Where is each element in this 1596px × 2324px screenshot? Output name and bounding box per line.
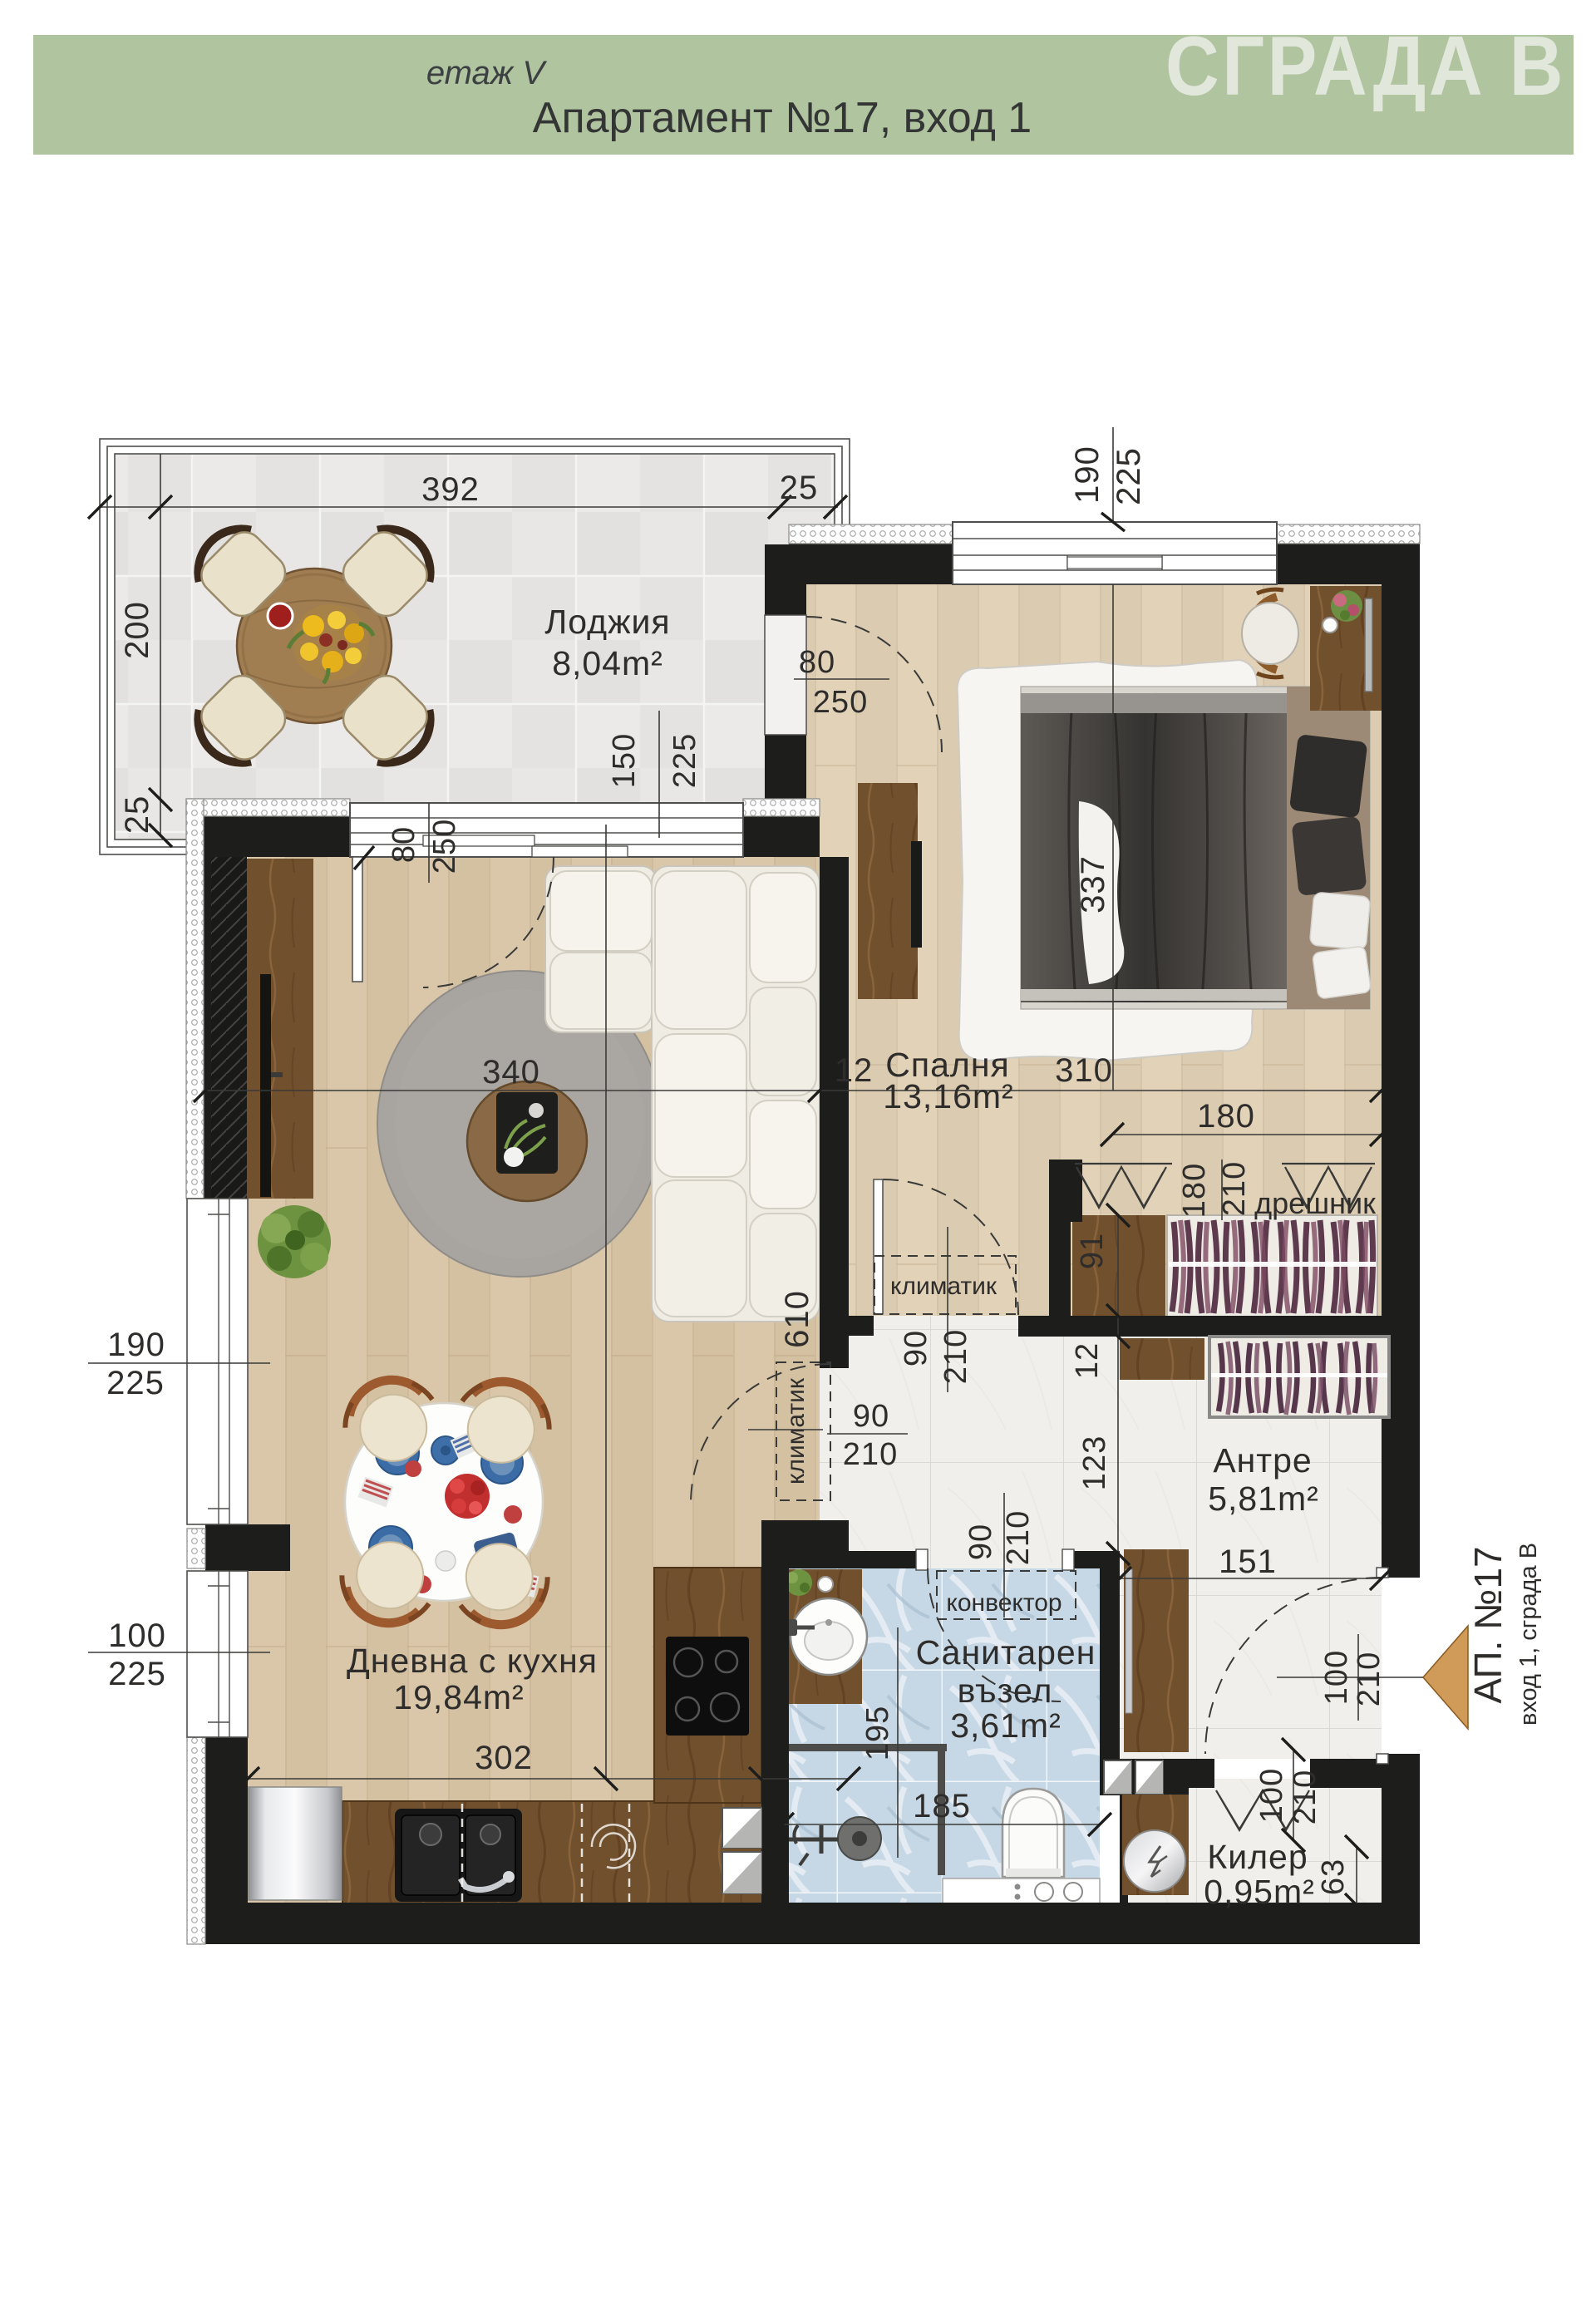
svg-text:180: 180 — [1177, 1163, 1212, 1218]
svg-text:250: 250 — [813, 685, 868, 720]
svg-text:8,04m²: 8,04m² — [552, 644, 663, 682]
svg-text:225: 225 — [1111, 447, 1147, 505]
svg-text:150: 150 — [607, 733, 642, 788]
svg-text:климатик: климатик — [890, 1273, 997, 1300]
svg-text:340: 340 — [482, 1054, 540, 1091]
svg-text:Дневна с кухня: Дневна с кухня — [347, 1642, 598, 1680]
svg-text:210: 210 — [1288, 1770, 1323, 1824]
svg-text:302: 302 — [475, 1740, 533, 1776]
svg-text:610: 610 — [779, 1290, 815, 1348]
svg-text:185: 185 — [913, 1788, 971, 1824]
svg-text:Лоджия: Лоджия — [544, 603, 670, 641]
svg-text:100: 100 — [1319, 1650, 1354, 1705]
svg-text:80: 80 — [387, 826, 421, 863]
svg-text:80: 80 — [799, 645, 835, 680]
svg-text:392: 392 — [421, 471, 480, 508]
svg-text:5,81m²: 5,81m² — [1208, 1480, 1319, 1518]
svg-text:3,61m²: 3,61m² — [950, 1706, 1062, 1745]
svg-text:СГРАДА В: СГРАДА В — [1165, 20, 1566, 113]
svg-text:210: 210 — [1352, 1652, 1387, 1706]
svg-text:Антре: Антре — [1213, 1441, 1312, 1480]
svg-text:13,16m²: 13,16m² — [883, 1077, 1013, 1115]
svg-text:190: 190 — [107, 1327, 165, 1363]
svg-text:25: 25 — [119, 795, 155, 835]
svg-text:190: 190 — [1069, 446, 1106, 504]
svg-text:151: 151 — [1219, 1544, 1277, 1580]
svg-text:100: 100 — [108, 1617, 166, 1654]
svg-text:90: 90 — [899, 1330, 933, 1366]
svg-text:123: 123 — [1077, 1435, 1112, 1490]
svg-text:възел: възел — [958, 1672, 1053, 1710]
svg-text:Килер: Килер — [1207, 1838, 1308, 1876]
svg-text:12: 12 — [835, 1052, 874, 1089]
svg-text:вход 1, сграда В: вход 1, сграда В — [1515, 1543, 1542, 1726]
svg-text:180: 180 — [1197, 1098, 1255, 1135]
svg-text:0,95m²: 0,95m² — [1204, 1873, 1315, 1911]
svg-text:91: 91 — [1075, 1233, 1110, 1269]
svg-text:310: 310 — [1055, 1052, 1113, 1089]
svg-text:12: 12 — [1070, 1342, 1105, 1379]
svg-text:195: 195 — [860, 1706, 895, 1760]
svg-text:етаж V: етаж V — [426, 55, 548, 91]
svg-text:климатик: климатик — [782, 1377, 810, 1485]
svg-text:63: 63 — [1316, 1859, 1351, 1895]
svg-text:210: 210 — [1217, 1161, 1252, 1216]
svg-text:210: 210 — [938, 1329, 973, 1384]
svg-text:200: 200 — [119, 601, 155, 659]
svg-text:АП. №17: АП. №17 — [1466, 1546, 1510, 1703]
svg-text:210: 210 — [1001, 1510, 1036, 1565]
svg-text:225: 225 — [667, 733, 702, 788]
svg-text:337: 337 — [1075, 855, 1111, 913]
svg-text:90: 90 — [853, 1399, 889, 1434]
svg-text:225: 225 — [108, 1656, 166, 1692]
svg-text:25: 25 — [780, 470, 819, 506]
svg-text:90: 90 — [963, 1524, 998, 1560]
svg-text:Апартамент №17, вход 1: Апартамент №17, вход 1 — [533, 94, 1032, 142]
svg-text:дрешник: дрешник — [1254, 1186, 1376, 1220]
svg-text:Санитарен: Санитарен — [916, 1633, 1096, 1672]
svg-text:250: 250 — [427, 819, 462, 874]
svg-text:19,84m²: 19,84m² — [393, 1678, 524, 1716]
svg-text:100: 100 — [1254, 1768, 1289, 1823]
svg-text:210: 210 — [843, 1437, 898, 1472]
svg-text:225: 225 — [106, 1365, 165, 1401]
